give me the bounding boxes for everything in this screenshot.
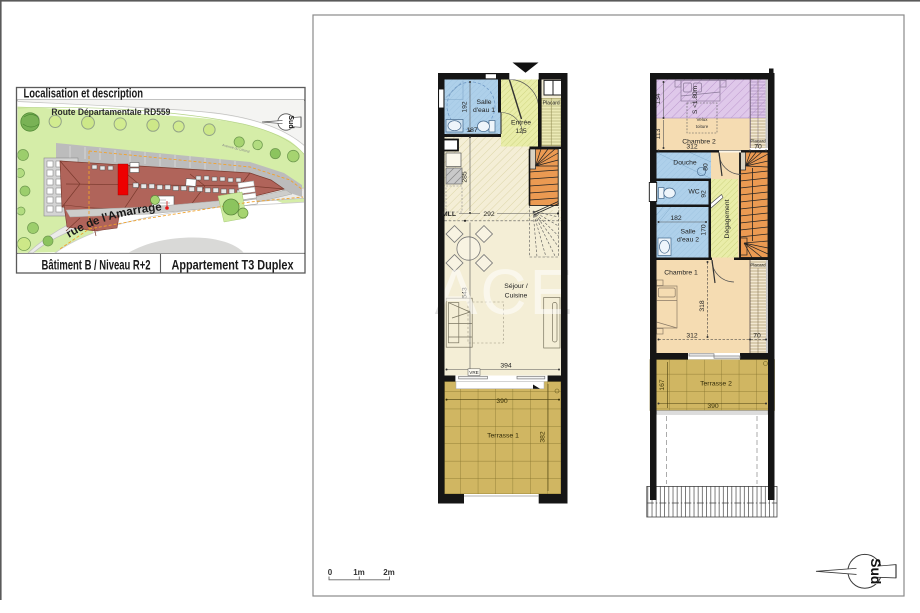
- svg-text:d'eau 1: d'eau 1: [473, 107, 495, 114]
- svg-text:80: 80: [703, 163, 710, 171]
- svg-text:182: 182: [670, 215, 682, 222]
- svg-text:Dégagement: Dégagement: [724, 199, 731, 238]
- svg-text:2m: 2m: [383, 568, 395, 577]
- svg-text:Entrée: Entrée: [511, 120, 531, 127]
- svg-text:S <1.80m: S <1.80m: [692, 86, 699, 114]
- svg-text:125: 125: [515, 128, 527, 135]
- svg-text:Localisation et description: Localisation et description: [24, 86, 144, 101]
- svg-text:292: 292: [483, 211, 495, 218]
- svg-text:70: 70: [753, 333, 761, 340]
- svg-text:92: 92: [701, 190, 708, 198]
- svg-text:1m: 1m: [353, 568, 365, 577]
- svg-text:Terrasse 2: Terrasse 2: [700, 381, 732, 388]
- svg-text:Placard: Placard: [750, 263, 766, 268]
- svg-text:318: 318: [699, 300, 706, 312]
- svg-text:toiture: toiture: [696, 124, 709, 129]
- svg-text:Placard: Placard: [543, 101, 560, 107]
- svg-text:192: 192: [462, 101, 469, 113]
- svg-text:Chambre 2: Chambre 2: [682, 139, 716, 146]
- svg-text:394: 394: [500, 363, 512, 370]
- svg-text:Sud: Sud: [868, 558, 883, 584]
- svg-text:113: 113: [655, 128, 662, 139]
- svg-text:285: 285: [462, 171, 469, 183]
- svg-text:Salle: Salle: [476, 99, 491, 106]
- svg-text:390: 390: [496, 398, 508, 405]
- svg-text:ACE: ACE: [435, 256, 576, 328]
- svg-text:Chambre 1: Chambre 1: [664, 270, 698, 277]
- svg-text:390: 390: [707, 403, 719, 410]
- svg-text:WC: WC: [688, 189, 699, 196]
- svg-text:Bâtiment B / Niveau R+2: Bâtiment B / Niveau R+2: [42, 257, 151, 273]
- svg-text:134: 134: [655, 93, 662, 105]
- svg-text:70: 70: [754, 144, 762, 151]
- svg-text:312: 312: [686, 333, 698, 340]
- svg-text:0: 0: [328, 568, 333, 577]
- svg-text:382: 382: [540, 431, 547, 443]
- svg-text:MLL: MLL: [442, 211, 456, 218]
- svg-text:Terrasse 1: Terrasse 1: [487, 433, 519, 440]
- svg-text:Douche: Douche: [673, 160, 697, 167]
- svg-text:Velux: Velux: [696, 117, 708, 122]
- svg-text:Route Départamentale RD559: Route Départamentale RD559: [51, 107, 170, 117]
- svg-text:VRE: VRE: [469, 370, 478, 375]
- svg-text:Salle: Salle: [680, 229, 695, 236]
- svg-text:167: 167: [659, 379, 666, 391]
- svg-text:Sud: Sud: [287, 115, 294, 128]
- svg-text:187: 187: [466, 127, 478, 134]
- svg-text:170: 170: [701, 224, 708, 236]
- svg-text:d'eau 2: d'eau 2: [677, 237, 699, 244]
- svg-text:Appartement T3 Duplex: Appartement T3 Duplex: [172, 257, 294, 273]
